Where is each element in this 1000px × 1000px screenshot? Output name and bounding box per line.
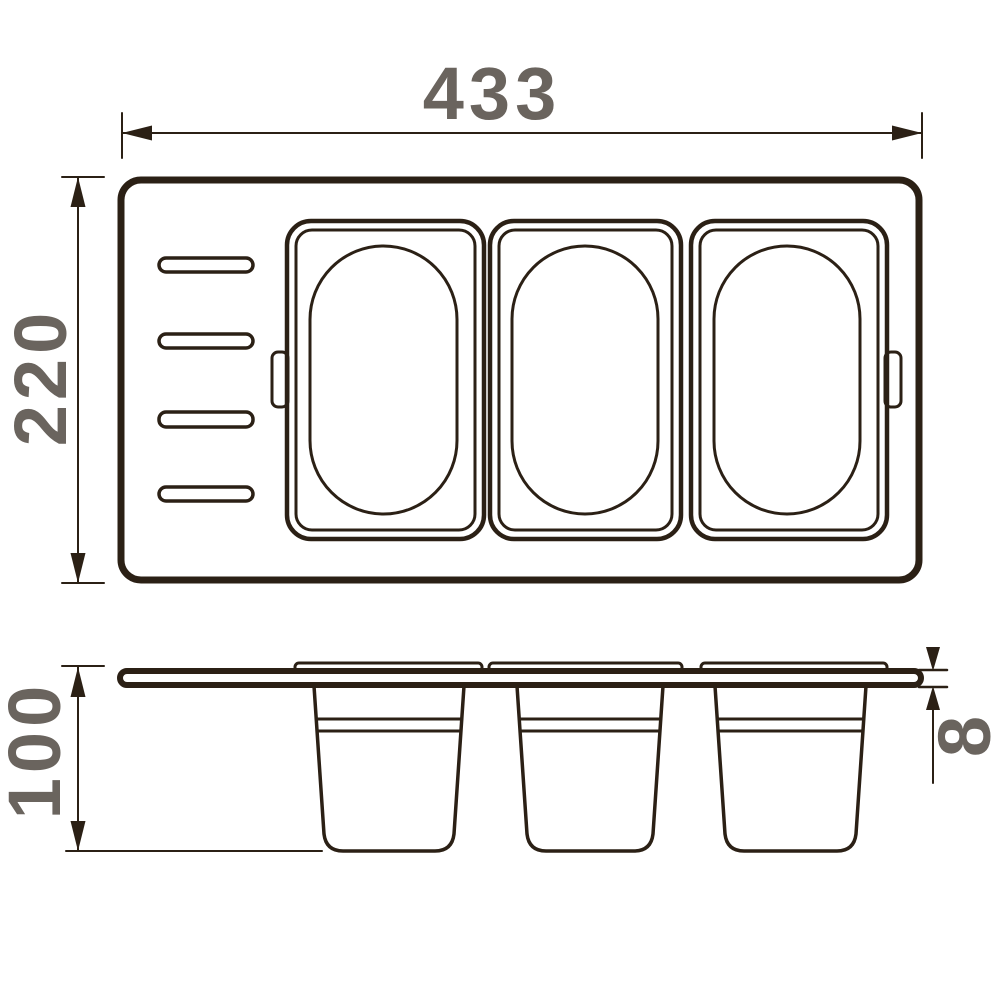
tray-slab [120,671,921,685]
arrowhead-down-icon [71,553,86,583]
dimension-depth: 100 [0,666,322,851]
container-2 [490,221,681,539]
side-view [120,663,921,851]
container-3-inner-edge [700,230,878,530]
container-1-inner-edge [296,230,475,530]
slot-2 [159,334,253,348]
dimension-height-label: 220 [0,308,82,446]
dimension-height: 220 [0,177,104,583]
slot-1 [159,258,253,272]
arrowhead-up-icon [71,177,86,207]
technical-drawing-page: 433 220 [0,0,1000,1000]
dimension-width: 433 [122,52,922,158]
arrowhead-down-icon [926,647,940,671]
bucket-3 [715,686,866,851]
top-view [121,180,919,580]
container-1 [287,221,484,539]
arrowhead-right-icon [892,126,922,141]
arrowhead-down-icon [71,821,86,851]
container-1-rim [287,221,484,539]
container-2-well [512,246,658,514]
slot-3 [159,412,253,427]
bucket-1 [314,686,464,851]
bucket-2-body [517,686,663,851]
container-3 [691,221,887,539]
container-3-well [714,246,860,514]
dimension-depth-label: 100 [0,681,76,819]
container-1-well [310,246,457,514]
dimension-thickness-label: 8 [923,711,1000,757]
container-3-rim [691,221,887,539]
dimension-width-label: 433 [423,52,561,135]
slot-4 [159,487,253,501]
dimension-thickness: 8 [919,647,1000,783]
drawing-canvas: 433 220 [0,0,1000,1000]
bucket-1-body [314,686,464,851]
bucket-2 [517,686,663,851]
arrowhead-left-icon [122,126,152,141]
tray-outline [121,180,919,580]
container-2-rim [490,221,681,539]
bucket-3-body [715,686,866,851]
